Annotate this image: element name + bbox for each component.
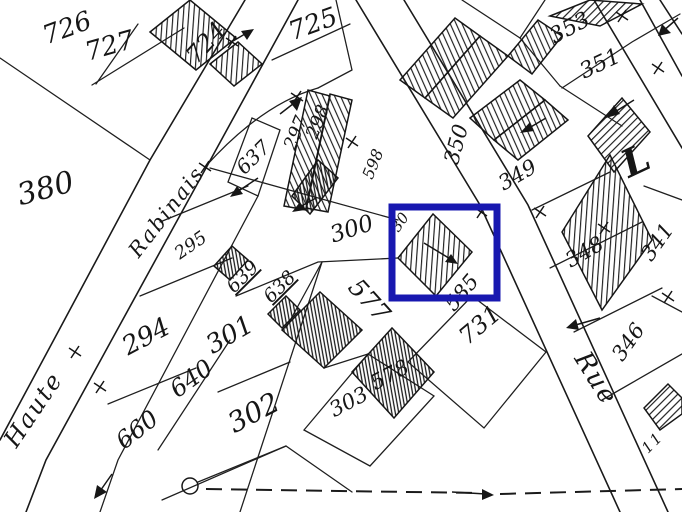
map-canvas[interactable]: 7267277247253533513802956372972985983503… <box>0 0 682 512</box>
cadastral-map: 7267277247253533513802956372972985983503… <box>0 0 682 512</box>
